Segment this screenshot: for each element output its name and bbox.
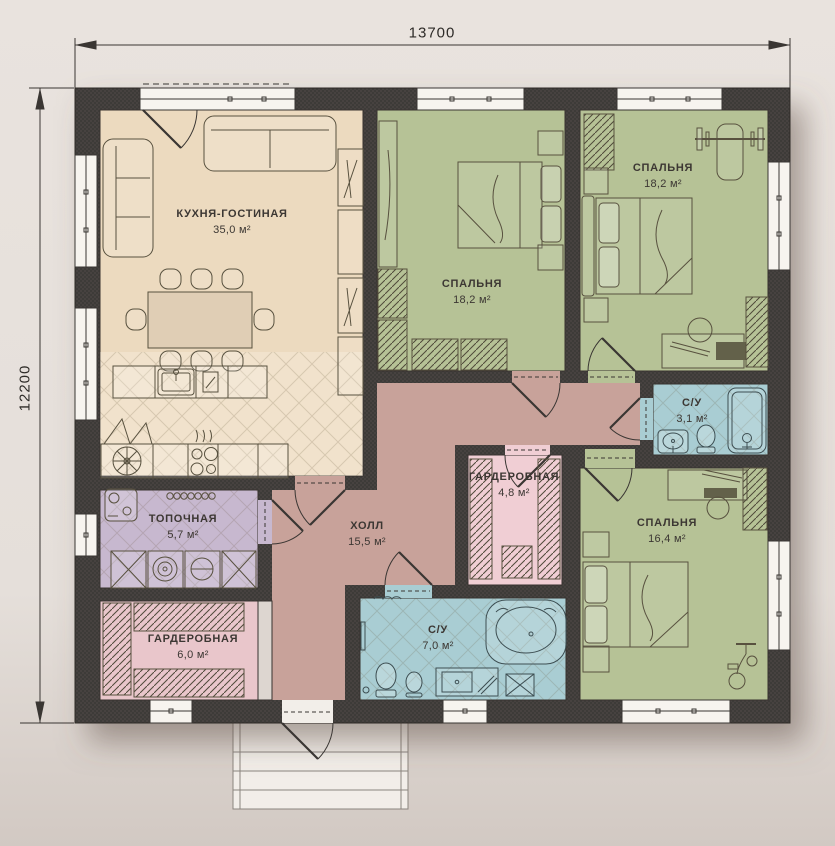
arrow-up-icon <box>36 90 44 109</box>
porch-deck <box>233 723 408 809</box>
shower <box>728 388 766 453</box>
bed <box>583 562 688 647</box>
wardrobe-shelves <box>538 459 560 579</box>
pillow <box>541 206 561 242</box>
pillow <box>541 166 561 202</box>
pillow <box>599 203 619 243</box>
window <box>75 155 97 267</box>
laptop <box>704 488 737 498</box>
washbasin <box>658 430 688 453</box>
window <box>417 88 524 110</box>
nightstand <box>538 245 563 270</box>
pillow <box>599 247 619 287</box>
pillow <box>585 566 607 603</box>
floor-plan: 13700 12200 КУХНЯ-ГОСТИНАЯ 35,0 м² СПАЛЬ… <box>0 0 835 846</box>
nightstand <box>584 298 608 322</box>
window <box>443 700 487 723</box>
headboard <box>582 196 594 296</box>
wardrobe-shelves <box>584 114 614 170</box>
wardrobe-shelves <box>412 339 458 370</box>
window <box>75 308 97 420</box>
porch <box>233 723 408 809</box>
dimension-label-width: 13700 <box>409 25 456 42</box>
dining-table <box>148 292 252 348</box>
window <box>75 514 97 556</box>
dimension-top <box>75 38 790 88</box>
arrow-right-icon <box>769 41 788 49</box>
wall-cabinets <box>338 149 363 395</box>
arrow-left-icon <box>77 41 96 49</box>
jacuzzi <box>486 600 566 664</box>
wardrobe-shelves <box>378 269 407 318</box>
window <box>768 541 790 650</box>
kitchen-island <box>113 366 267 398</box>
window <box>617 88 722 110</box>
bed <box>582 196 692 296</box>
wardrobe-shelves <box>134 669 244 697</box>
thin-partition <box>258 601 272 700</box>
vanity <box>436 668 498 696</box>
laptop <box>716 342 746 360</box>
bidet <box>406 672 422 697</box>
toilet <box>697 425 715 453</box>
nightstand <box>584 168 608 194</box>
wardrobe-shelves <box>378 320 407 370</box>
window <box>622 700 730 723</box>
window <box>768 162 790 270</box>
boiler <box>105 489 137 521</box>
pillow <box>585 606 607 643</box>
arrow-down-icon <box>36 702 44 721</box>
window <box>150 700 192 723</box>
nightstand <box>538 131 563 155</box>
wardrobe-shelves <box>103 603 131 695</box>
bookshelf <box>743 468 767 530</box>
bookshelf <box>746 297 768 367</box>
sofa <box>103 139 153 257</box>
floor-plan-drawing <box>0 0 835 846</box>
nightstand <box>583 646 609 672</box>
wardrobe-shelves <box>134 603 244 631</box>
wardrobe-shelves <box>502 546 532 578</box>
utility-units <box>111 551 256 588</box>
nightstand <box>583 532 609 557</box>
shelf <box>379 121 397 267</box>
wardrobe-shelves <box>461 339 507 370</box>
dimension-label-height: 12200 <box>17 365 34 412</box>
wardrobe-shelves <box>470 459 492 579</box>
